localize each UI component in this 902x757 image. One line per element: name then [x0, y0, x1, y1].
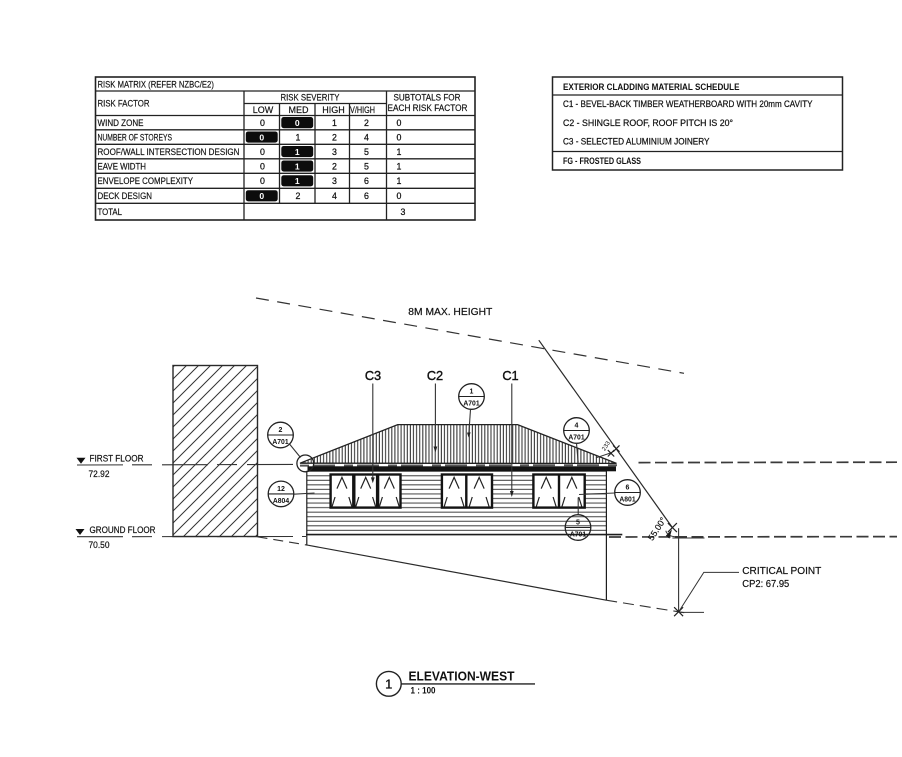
- svg-text:NUMBER OF STOREYS: NUMBER OF STOREYS: [98, 132, 173, 142]
- svg-text:0: 0: [260, 147, 265, 157]
- svg-text:1: 1: [397, 161, 402, 171]
- svg-text:DECK DESIGN: DECK DESIGN: [98, 191, 153, 201]
- svg-text:2: 2: [332, 132, 337, 142]
- svg-text:5: 5: [364, 161, 369, 171]
- svg-text:3: 3: [332, 147, 337, 157]
- svg-text:4: 4: [575, 423, 579, 430]
- svg-text:HIGH: HIGH: [322, 105, 345, 115]
- svg-text:LOW: LOW: [253, 105, 274, 115]
- svg-text:SUBTOTALS FOR: SUBTOTALS FOR: [394, 93, 461, 103]
- svg-text:MED: MED: [289, 105, 310, 115]
- svg-text:5: 5: [576, 520, 580, 527]
- svg-text:A801: A801: [619, 497, 635, 504]
- svg-text:6: 6: [626, 485, 630, 492]
- svg-text:4: 4: [364, 132, 369, 142]
- svg-text:FG - FROSTED GLASS: FG - FROSTED GLASS: [563, 156, 641, 166]
- svg-text:3: 3: [401, 207, 406, 217]
- svg-text:EAVE WIDTH: EAVE WIDTH: [98, 161, 147, 171]
- svg-text:2: 2: [279, 427, 283, 434]
- svg-text:8M MAX. HEIGHT: 8M MAX. HEIGHT: [408, 307, 492, 318]
- svg-text:ENVELOPE COMPLEXITY: ENVELOPE COMPLEXITY: [98, 176, 194, 186]
- svg-text:1: 1: [296, 132, 301, 142]
- svg-text:55.00°: 55.00°: [646, 515, 668, 542]
- svg-text:70.50: 70.50: [89, 540, 110, 550]
- svg-text:A701: A701: [570, 532, 586, 539]
- svg-text:RISK MATRIX (REFER NZBC/E2): RISK MATRIX (REFER NZBC/E2): [98, 79, 214, 89]
- svg-text:EXTERIOR CLADDING MATERIAL SCH: EXTERIOR CLADDING MATERIAL SCHEDULE: [563, 82, 740, 92]
- svg-text:1: 1: [470, 389, 474, 396]
- svg-text:C3: C3: [365, 368, 381, 383]
- svg-text:TOTAL: TOTAL: [98, 207, 123, 217]
- svg-text:1: 1: [397, 147, 402, 157]
- svg-text:WIND ZONE: WIND ZONE: [98, 118, 144, 128]
- svg-text:C3 - SELECTED ALUMINIUM JOINER: C3 - SELECTED ALUMINIUM JOINERY: [563, 136, 710, 146]
- svg-text:2: 2: [364, 118, 369, 128]
- svg-text:C1: C1: [502, 368, 518, 383]
- svg-text:V/HIGH: V/HIGH: [350, 105, 375, 115]
- svg-text:C2 - SHINGLE ROOF, ROOF PITCH: C2 - SHINGLE ROOF, ROOF PITCH IS 20°: [563, 118, 733, 128]
- svg-text:GROUND FLOOR: GROUND FLOOR: [90, 525, 156, 535]
- svg-text:1: 1: [295, 161, 300, 171]
- svg-text:C2: C2: [427, 368, 443, 383]
- svg-text:3: 3: [332, 176, 337, 186]
- svg-text:ELEVATION-WEST: ELEVATION-WEST: [409, 669, 515, 684]
- svg-text:0: 0: [260, 161, 265, 171]
- svg-text:ROOF/WALL INTERSECTION DESIGN: ROOF/WALL INTERSECTION DESIGN: [98, 147, 240, 157]
- svg-text:RISK SEVERITY: RISK SEVERITY: [281, 93, 340, 103]
- svg-text:CP2: 67.95: CP2: 67.95: [742, 579, 789, 590]
- svg-text:EACH RISK FACTOR: EACH RISK FACTOR: [388, 103, 468, 113]
- svg-text:6: 6: [364, 176, 369, 186]
- svg-text:12: 12: [277, 486, 285, 493]
- svg-text:0: 0: [295, 118, 300, 128]
- svg-text:A701: A701: [272, 439, 288, 446]
- svg-text:5: 5: [364, 147, 369, 157]
- svg-text:0: 0: [397, 191, 402, 201]
- svg-text:0: 0: [397, 132, 402, 142]
- svg-text:1: 1: [295, 176, 300, 186]
- svg-text:4: 4: [332, 191, 337, 201]
- svg-text:A804: A804: [273, 498, 289, 505]
- svg-text:A701: A701: [463, 401, 479, 408]
- svg-text:FIRST FLOOR: FIRST FLOOR: [90, 453, 144, 463]
- svg-text:RISK FACTOR: RISK FACTOR: [98, 99, 150, 109]
- svg-text:2: 2: [296, 191, 301, 201]
- svg-text:0: 0: [260, 176, 265, 186]
- svg-text:72.92: 72.92: [89, 469, 110, 479]
- svg-text:CRITICAL POINT: CRITICAL POINT: [742, 566, 821, 577]
- svg-text:0: 0: [260, 118, 265, 128]
- svg-text:C1 - BEVEL-BACK TIMBER WEATHER: C1 - BEVEL-BACK TIMBER WEATHERBOARD WITH…: [563, 99, 813, 109]
- svg-text:1: 1: [397, 176, 402, 186]
- svg-text:0: 0: [397, 118, 402, 128]
- svg-text:1 : 100: 1 : 100: [411, 685, 436, 695]
- svg-text:0: 0: [259, 191, 264, 201]
- svg-text:1: 1: [385, 676, 392, 691]
- svg-text:1: 1: [295, 147, 300, 157]
- svg-text:6: 6: [364, 191, 369, 201]
- svg-text:2: 2: [332, 161, 337, 171]
- svg-text:A701: A701: [568, 435, 584, 442]
- svg-text:1: 1: [332, 118, 337, 128]
- svg-text:0: 0: [259, 132, 264, 142]
